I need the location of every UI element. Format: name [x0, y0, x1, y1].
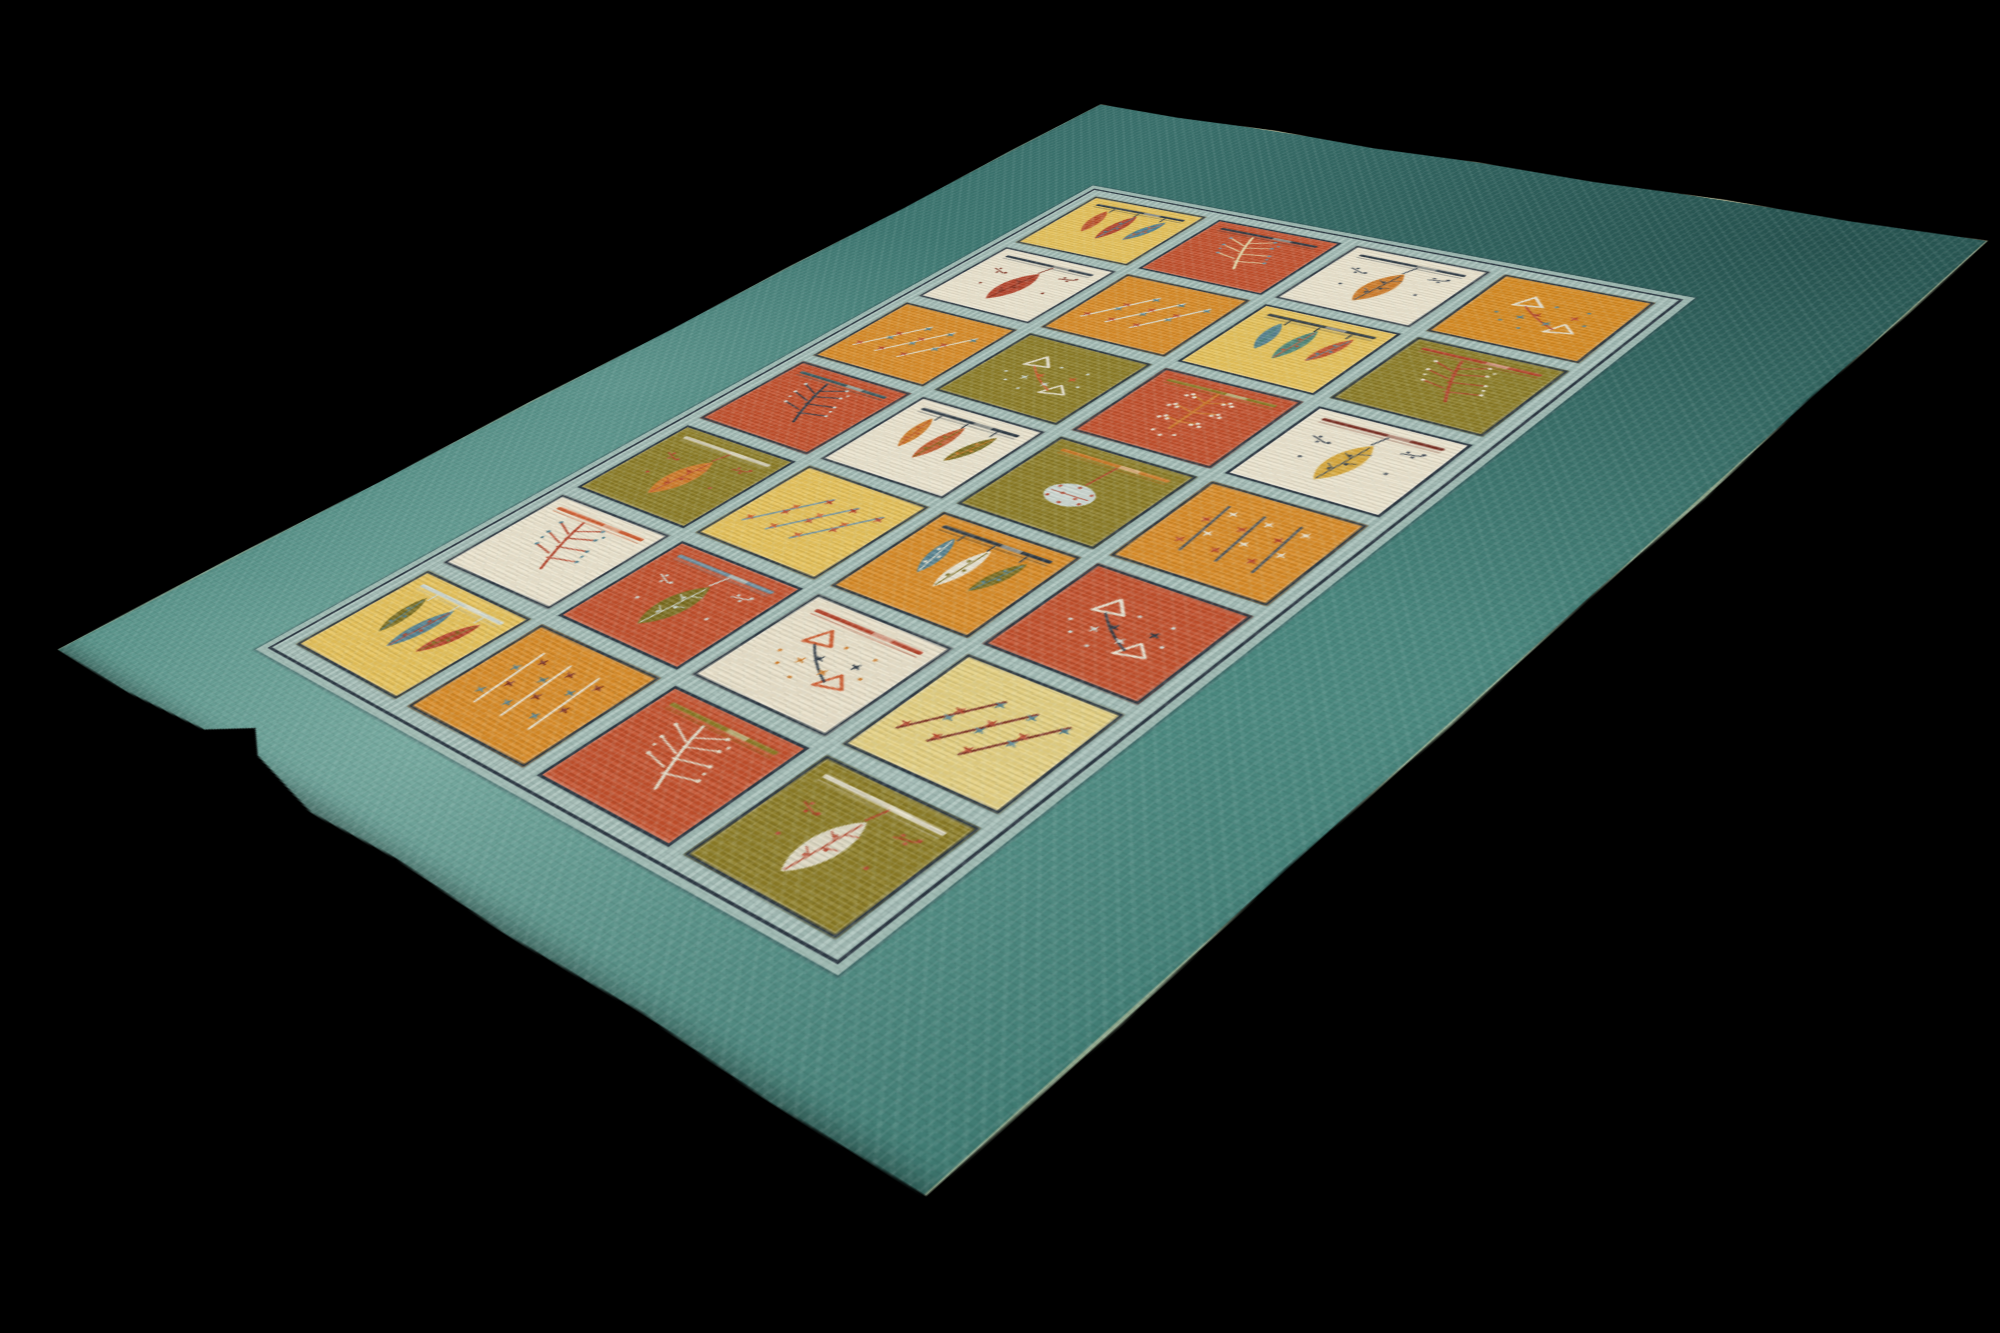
panel-grid — [267, 189, 1683, 965]
gabbeh-rug — [53, 103, 1993, 1205]
scene-background — [0, 0, 2000, 1333]
